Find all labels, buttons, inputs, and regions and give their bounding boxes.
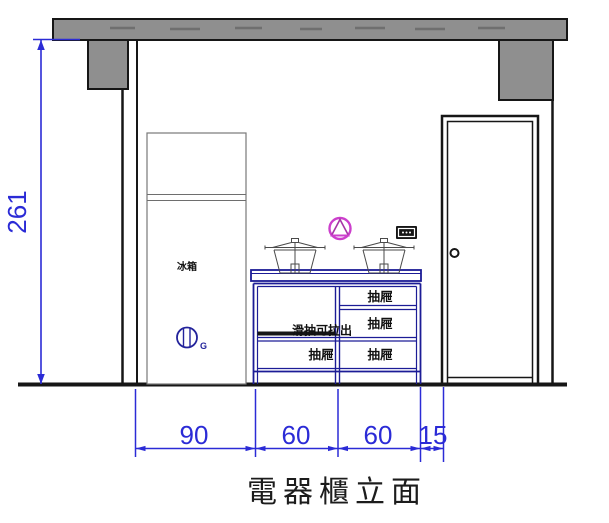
sliding-shelf-label: 滑抽可拉出 xyxy=(292,323,352,338)
width-arrow-3b xyxy=(338,446,348,451)
door-knob-icon xyxy=(451,249,459,257)
refrigerator: 冰箱 G xyxy=(147,133,246,384)
drawer-label-3: 抽屜 xyxy=(367,347,393,362)
countertop xyxy=(251,270,421,281)
right-beam-section xyxy=(499,40,553,100)
appliance-cabinet: 滑抽可拉出 抽屜 抽屜 抽屜 抽屜 xyxy=(251,270,421,384)
drawer-label-4: 抽屜 xyxy=(308,347,334,362)
door xyxy=(442,116,538,384)
refrigerator-outline xyxy=(147,133,246,384)
width-arrow-2a xyxy=(246,446,256,451)
elevation-drawing: 冰箱 G 滑抽可拉出 抽屜 抽屜 xyxy=(0,0,609,523)
ground-mark-label: G xyxy=(200,341,207,351)
height-dimension: 261 xyxy=(2,40,80,385)
power-outlet-icon xyxy=(396,226,417,239)
width-arrow-1 xyxy=(136,446,146,451)
drawer-label-1: 抽屜 xyxy=(367,289,393,304)
drawing-title: 電器櫃立面 xyxy=(247,476,427,509)
height-dim-value: 261 xyxy=(2,190,32,233)
width-arrow-3a xyxy=(328,446,338,451)
width-dim-value-3: 60 xyxy=(364,420,393,450)
width-dim-value-1: 90 xyxy=(180,420,209,450)
left-beam-section xyxy=(88,40,128,89)
width-dim-value-2: 60 xyxy=(282,420,311,450)
drawer-label-2: 抽屜 xyxy=(367,316,393,331)
gas-hob-symbol xyxy=(330,218,351,239)
height-dim-arrow-top xyxy=(37,40,45,50)
fridge-label: 冰箱 xyxy=(177,260,197,273)
width-arrow-2b xyxy=(256,446,266,451)
width-dimensions: 90 60 60 15 xyxy=(136,387,448,462)
elevation-drawing-canvas: 冰箱 G 滑抽可拉出 抽屜 抽屜 xyxy=(0,0,609,523)
width-dim-value-4: 15 xyxy=(419,420,448,450)
pot-icon-right xyxy=(354,239,414,274)
pot-icon-left xyxy=(265,239,325,274)
door-leaf xyxy=(448,122,533,385)
